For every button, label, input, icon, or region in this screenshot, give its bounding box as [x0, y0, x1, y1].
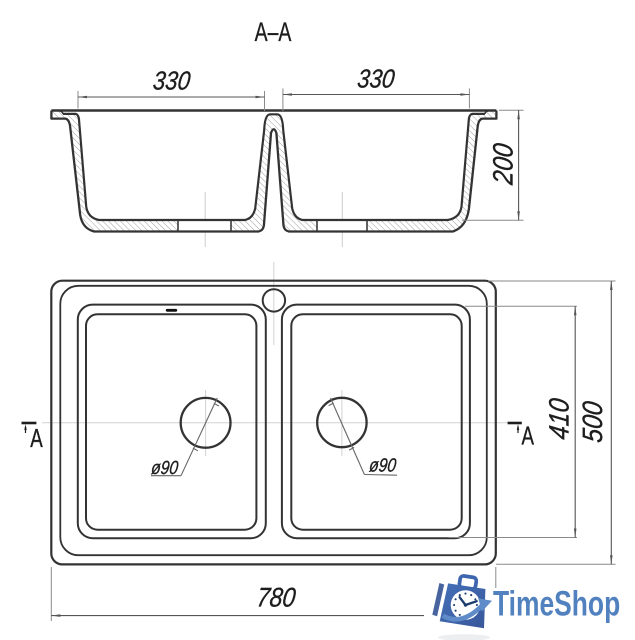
svg-text:500: 500	[577, 399, 609, 444]
svg-text:410: 410	[543, 396, 575, 441]
svg-text:A: A	[522, 421, 535, 451]
svg-text:330: 330	[151, 67, 192, 96]
svg-text:A–A: A–A	[255, 17, 292, 47]
svg-text:A: A	[30, 423, 43, 453]
svg-text:TimeShop: TimeShop	[493, 584, 620, 624]
svg-text:780: 780	[255, 583, 297, 613]
svg-text:ø90: ø90	[368, 454, 398, 476]
svg-text:200: 200	[487, 141, 519, 187]
svg-text:330: 330	[356, 65, 397, 94]
svg-text:ø90: ø90	[150, 457, 180, 479]
